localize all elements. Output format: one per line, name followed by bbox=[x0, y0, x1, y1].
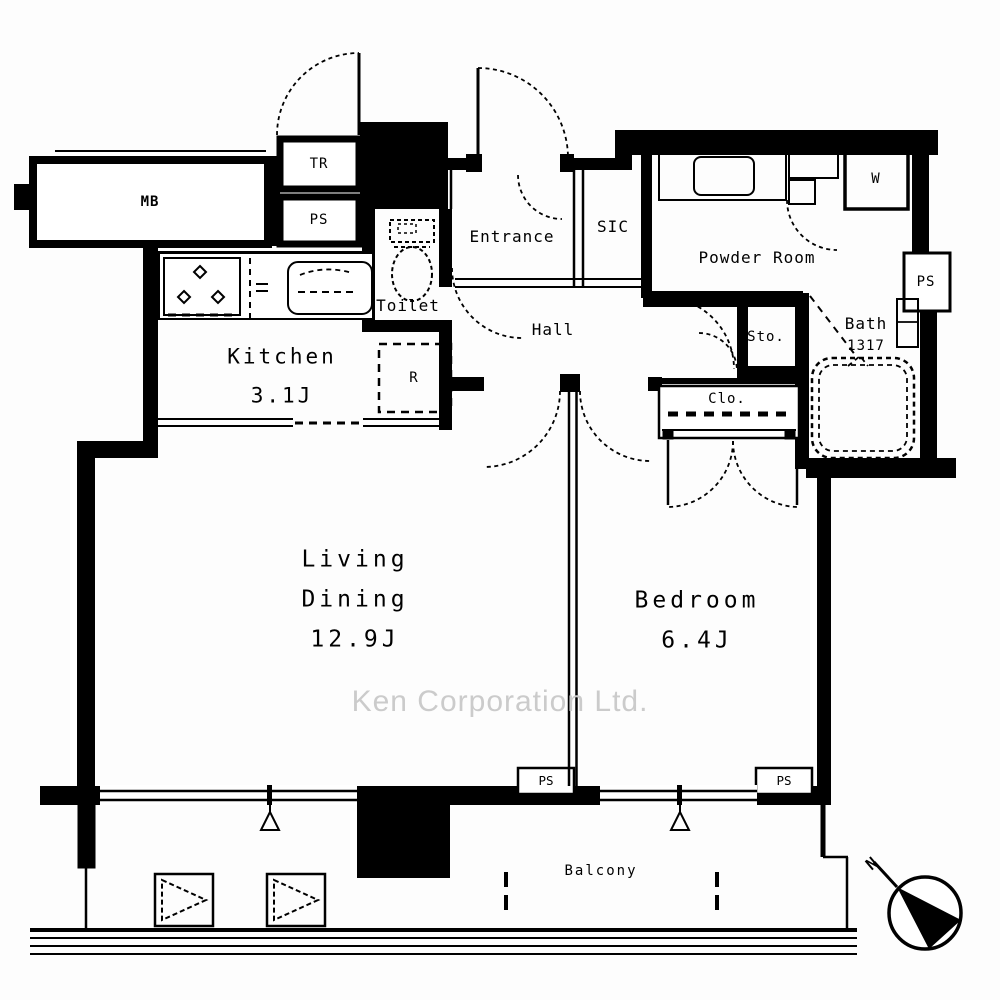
label-living-line2: Dining bbox=[301, 589, 408, 612]
sic-door-arc bbox=[518, 175, 562, 219]
vanity-counter bbox=[659, 151, 786, 200]
stove bbox=[164, 258, 240, 315]
label-powder-room: Powder Room bbox=[699, 250, 816, 266]
label-sic: SIC bbox=[597, 219, 629, 235]
label-living-size: 12.9J bbox=[310, 629, 399, 652]
entrance-door-arc bbox=[478, 68, 568, 158]
label-ps-right: PS bbox=[917, 275, 936, 289]
label-bath-size: 1317 bbox=[847, 339, 885, 353]
label-bath: Bath bbox=[845, 316, 888, 332]
label-clo: Clo. bbox=[708, 392, 746, 406]
closet-left-door-arc bbox=[667, 441, 733, 507]
label-living-line1: Living bbox=[301, 549, 408, 572]
label-fridge: R bbox=[409, 371, 418, 385]
label-kitchen: Kitchen bbox=[227, 347, 337, 368]
living-window bbox=[100, 785, 357, 805]
pillar-top bbox=[360, 122, 448, 209]
window-markers bbox=[261, 804, 689, 830]
label-mb: MB bbox=[141, 195, 160, 209]
label-ps-bottom-right: PS bbox=[776, 775, 791, 788]
label-bedroom-size: 6.4J bbox=[661, 630, 732, 653]
floor-plan: MB TR PS Toilet Entrance SIC Powder Room… bbox=[0, 0, 1000, 1000]
label-ps-top: PS bbox=[310, 213, 329, 227]
powder-room-door-arc bbox=[787, 200, 837, 250]
watermark: Ken Corporation Ltd. bbox=[352, 685, 649, 719]
vanity-sink bbox=[694, 157, 754, 195]
label-entrance: Entrance bbox=[469, 229, 554, 245]
label-bedroom: Bedroom bbox=[635, 590, 760, 613]
storage-door-arc bbox=[699, 333, 737, 371]
label-hall: Hall bbox=[532, 322, 575, 338]
bedroom-door-arc bbox=[580, 391, 650, 461]
label-ps-bottom-left: PS bbox=[538, 775, 553, 788]
toilet-fixture bbox=[390, 220, 434, 301]
living-door-arc bbox=[484, 391, 560, 467]
floor-plan-canvas bbox=[0, 0, 1000, 1000]
label-toilet: Toilet bbox=[376, 298, 440, 314]
closet-right-door-arc bbox=[733, 441, 799, 507]
corridor-door-arc bbox=[662, 297, 734, 369]
pillar-bottom bbox=[357, 786, 450, 878]
bedroom-window bbox=[600, 785, 757, 805]
balcony-railing bbox=[30, 928, 857, 954]
compass-icon bbox=[874, 862, 961, 949]
trunk-room-door-arc bbox=[277, 53, 359, 135]
label-kitchen-size: 3.1J bbox=[251, 386, 314, 407]
label-sto: Sto. bbox=[747, 330, 785, 344]
label-balcony: Balcony bbox=[564, 864, 637, 878]
bathtub bbox=[812, 358, 914, 458]
label-washer: W bbox=[871, 172, 880, 186]
balcony-details bbox=[30, 872, 857, 954]
label-tr: TR bbox=[310, 157, 329, 171]
